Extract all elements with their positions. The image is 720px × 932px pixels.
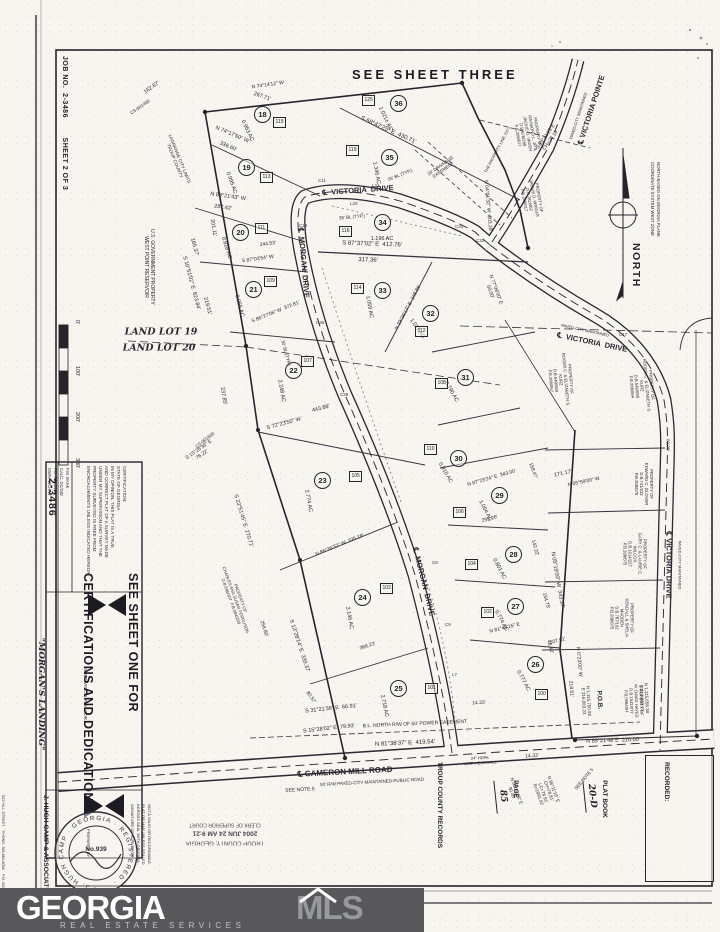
map-annotation: 158.47' [526, 462, 537, 479]
house-number: 100 [535, 689, 548, 700]
lot-acreage: 0.995 AC [224, 171, 238, 194]
house-number: 115 [273, 117, 286, 128]
lot-number-circle: 20 [232, 224, 249, 241]
map-annotation: N 87°23'24" E 343.00' [467, 469, 517, 488]
map-annotation: P.O.B. [595, 690, 604, 709]
map-annotation: 165.37' [189, 238, 200, 257]
house-number: 112 [415, 326, 428, 337]
house-number: 105 [349, 471, 362, 482]
map-annotation: LAGRANGE CITY LIMITS TROUP COUNTY [162, 134, 191, 186]
curve-label: C17 [619, 332, 627, 337]
map-annotation: 35' BL (TYP.) [339, 213, 365, 221]
map-annotation: S 15°28'36" E 76.22' [185, 439, 217, 466]
map-annotation: 267.71' [252, 91, 271, 103]
map-annotation: S 15°28'02" E 79.93' [303, 723, 355, 735]
map-annotation: 80.57' [304, 691, 317, 705]
map-annotation: 60.00' [665, 439, 670, 451]
recorded-box-content: RECORDED: PLAT BOOK 20-D PAGE 85 TROUP C… [397, 762, 709, 874]
map-annotation: N 74°14'12" W [251, 81, 284, 91]
map-annotation: 171.17' [554, 469, 573, 479]
map-annotation: PROPERTY OF EDWARD C. GLOVER D.B.741/232… [633, 463, 653, 505]
map-annotation: N 05°19'00" W 343.37' [549, 552, 565, 609]
curve-label: L7 [452, 672, 457, 677]
house-number: 103 [380, 583, 393, 594]
job-number-strip: JOB NO. 2-3486 SHEET 2 OF 3 [61, 56, 68, 190]
georgia-mls-banner: GEORGIA MLS REAL ESTATE SERVICES [0, 888, 424, 932]
map-annotation: S 87°37'02" E 412.76' [342, 240, 402, 249]
map-annotation: ℄ VICTORIA DRIVE [322, 184, 394, 198]
house-number: 114 [351, 283, 364, 294]
curve-label: C9 [445, 622, 451, 627]
stamp-clerk-line: CLERK OF SUPERIOR COURT [165, 820, 285, 828]
lot-number-circle: 31 [457, 369, 474, 386]
map-annotation: S 10°51'02" E 823.84' [181, 256, 201, 311]
house-number: 104 [465, 559, 478, 570]
map-annotation: CS-801400 [129, 98, 151, 115]
map-annotation: THE PROPERTY LINE 707'± [484, 126, 512, 174]
map-annotation: 368.23' [359, 642, 376, 653]
subdivision-name: "MORGAN'S LANDING" [36, 600, 46, 788]
plat-book-value: 20-D [582, 779, 599, 812]
surveyor-firm-name: J. HUGH CAMP & ASSOCIATES [42, 795, 49, 891]
map-annotation: PROPERTY OF GARY C. & LAURIE C. WILCOX D… [622, 533, 647, 576]
map-annotation: 30' BL (TYP.) [280, 340, 292, 367]
lot-acreage: 2.718 AC [378, 694, 389, 717]
title-block: SUBDIVISION PLAT FOR "MORGAN'S LANDING" … [0, 600, 124, 788]
job-number-block: 2-3486 [46, 478, 58, 517]
stamp-county-line: TROUP COUNTY, GEORGIA [165, 837, 285, 846]
lot-number-circle: 24 [354, 589, 371, 606]
map-annotation: 24" HDPE W/SR HEADWALL [463, 755, 497, 766]
map-annotation: ℄ VICTORIA DRIVE [664, 531, 673, 598]
map-annotation: N 88°21'43" W [210, 191, 246, 202]
lot-acreage: 0.777 AC [515, 669, 531, 692]
map-annotation: S 72°23'50" W [266, 416, 302, 431]
curve-label: C36 [316, 320, 324, 325]
map-annotation: N 0°23'00" W [574, 647, 582, 677]
scale-label-0: 0' [74, 320, 80, 324]
prepared-by-label: PREPARED BY [86, 795, 91, 891]
map-annotation: PROPERTY OF ROGER C. & ELIZABETH S. KURZ… [545, 352, 574, 408]
lot-acreage: 1.059 AC [364, 295, 374, 318]
map-annotation: 287.42' [214, 204, 233, 213]
stamp-date-line: 2004 JUN 24 AM 9:21 [165, 828, 285, 838]
surveyor-address-line1: 922 HILL STREET PHONE: 706-884-6056 P.O.… [1, 795, 5, 891]
map-annotation: PROPERTY OF ROGER C. & ELIZABETH S. KURZ… [626, 358, 655, 414]
lot-acreage: 0.801 AC [491, 557, 507, 580]
map-annotation: 25' BL (TYP.) [387, 168, 413, 183]
house-number: 109 [264, 276, 277, 287]
map-annotation: S 23°51'45" E 270.71' [232, 494, 254, 548]
see-sheet-three-title: SEE SHEET THREE [352, 67, 518, 82]
lot-number-circle: 34 [374, 214, 391, 231]
map-annotation: PROPERTY OF JACKIE D. WRIGHT D.B.782/462… [518, 178, 544, 219]
lot-acreage: 0.910 AC [437, 462, 454, 485]
house-number: 113 [260, 172, 273, 183]
map-annotation: 256.80' [258, 620, 269, 637]
lot-number-circle: 29 [491, 487, 508, 504]
map-annotation: 219.51' [202, 297, 213, 316]
map-annotation: N 86°36'32" W 335.18' [315, 534, 365, 559]
house-number: 101 [425, 683, 438, 694]
map-annotation: B.L. NORTH R/W OF 50' POWER EASEMENT [363, 720, 468, 730]
lot-acreage: 2.774 AC [303, 489, 313, 512]
curve-label: L20 [350, 201, 358, 206]
curve-label: C38 [340, 392, 348, 397]
lot-number-circle: 26 [527, 656, 544, 673]
map-annotation: N 89°21'48"E 220.00' [586, 737, 640, 745]
scale-label-300: 300' [74, 458, 80, 468]
house-number: 119 [346, 145, 359, 156]
lot-number-circle: 21 [245, 281, 262, 298]
map-annotation: U.S. GOVERNMENT PROPERTY WEST POINT RESE… [142, 229, 154, 305]
house-number: 106 [453, 507, 466, 518]
map-annotation: N 05°59'00" W [567, 477, 600, 490]
curve-label: C11 [318, 178, 326, 183]
lot-number-circle: 36 [390, 95, 407, 112]
house-number: 125 [362, 95, 375, 106]
map-annotation: PROPERTY OF KENDALL & SHELIA MADDEN D.B.… [609, 599, 634, 638]
map-annotation: 14.33' [525, 754, 539, 761]
map-annotation: 295.26' [481, 515, 498, 525]
map-annotation: N 81°43'15" E [489, 622, 521, 635]
lot-acreage: 2.146 AC [344, 606, 354, 629]
map-annotation: N 04°01'32" W 203.28' [482, 180, 492, 232]
map-annotation: ℄ MORGAN DRIVE [410, 547, 436, 617]
map-annotation: PROPERTY OF CHARLES AND SUSAN FERGUSON D… [216, 565, 254, 636]
lot-number-circle: 30 [450, 450, 467, 467]
map-annotation: LAND LOT 20 [123, 342, 196, 353]
house-number: 111 [255, 223, 268, 234]
curve-label: C33 [476, 238, 484, 243]
see-sheet-one-line1: SEE SHEET ONE FOR [125, 573, 140, 811]
map-annotation: 162.67' [143, 80, 161, 96]
plat-book-label: PLAT BOOK [601, 780, 608, 818]
county-clerk-stamp: TROUP COUNTY, GEORGIA 2004 JUN 24 AM 9:2… [165, 820, 285, 846]
plat-labels-layer: SEE SHEET THREE JOB NO. 2-3486 SHEET 2 O… [0, 0, 720, 932]
mls-mountain-icon [0, 888, 424, 932]
seal-validity-note: NOT A VALID OR RECORDABLE PLAT OR MAP UN… [130, 804, 152, 864]
map-annotation: 336.60' [219, 141, 238, 154]
map-annotation: S 87°03'54" W [242, 255, 275, 265]
map-annotation: 20' DRAINAGE EASEMENT [426, 155, 457, 181]
lot-number-circle: 27 [507, 598, 524, 615]
map-annotation: 154.75' [540, 592, 550, 609]
map-annotation: N 1,115,700.92 E 216,083.23 [580, 686, 592, 717]
house-number: 116 [339, 226, 352, 237]
lot-acreage: 0.955 AC [233, 294, 245, 318]
map-annotation: PROPERTY OF M. DAVID HAYES D.B.1542/077 … [623, 684, 644, 718]
map-annotation: S 31°21'36" E 66.91' [305, 703, 357, 715]
lot-number-circle: 35 [381, 149, 398, 166]
map-annotation: ℄ MORGAN DRIVE [296, 228, 311, 299]
title-block-subplat: SUBDIVISION PLAT FOR [83, 600, 88, 788]
map-annotation: 218.51' [566, 681, 573, 698]
map-annotation: PAVED-CITY MAINTAINED [677, 541, 682, 590]
lot-acreage: 2.248 AC [276, 379, 286, 402]
house-number: 102 [481, 607, 494, 618]
map-annotation: 142.22' [529, 539, 539, 556]
lot-number-circle: 25 [390, 680, 407, 697]
lot-number-circle: 33 [374, 282, 391, 299]
scale-label-200: 200' [74, 412, 80, 422]
north-basis-note: NORTH BASED ON GEORGIA PLANE COORDINATE … [649, 162, 661, 237]
map-annotation: 237.85' [218, 387, 227, 406]
house-number: 107 [301, 356, 314, 367]
map-annotation: ℄ CAMERON MILL ROAD [297, 765, 393, 779]
recorded-title: RECORDED: [660, 762, 673, 874]
lot-acreage: 1.346 AC [371, 161, 381, 184]
house-number: 108 [435, 378, 448, 389]
house-number: 110 [424, 444, 437, 455]
map-annotation: LAND LOT 19 [125, 326, 198, 337]
map-annotation: 14.33' [472, 701, 486, 708]
map-annotation: SEE NOTE 5 [285, 787, 315, 794]
curve-label: C34 [455, 224, 463, 229]
map-annotation: S 13°28'14" E 339.37' [287, 619, 310, 673]
north-label: NORTH [630, 243, 642, 288]
map-annotation: 201.11' [208, 219, 217, 237]
map-annotation: 317.36' [358, 257, 378, 265]
prepared-by-block: PREPARED BY J. HUGH CAMP & ASSOCIATES 92… [0, 795, 127, 891]
map-annotation: 443.88' [312, 404, 331, 415]
map-annotation: S 86°27'06" W 372.81' [251, 301, 301, 326]
scanned-plat-page: · J. HUGH CAMP · GEORGIA · REGISTERED · … [0, 0, 720, 932]
recorded-box: RECORDED: PLAT BOOK 20-D PAGE 85 TROUP C… [645, 755, 714, 882]
scale-label-100: 100' [74, 366, 80, 376]
map-annotation: N 77°09'00" E 50.00' [481, 274, 503, 307]
map-annotation: N 81°38'37" E 419.54' [375, 739, 435, 749]
lot-number-circle: 19 [238, 159, 255, 176]
lot-number-circle: 28 [505, 546, 522, 563]
recorded-records: TROUP COUNTY RECORDS [433, 762, 446, 874]
lot-acreage: 0.818 AC [219, 236, 232, 260]
curve-label: C8 [432, 560, 438, 565]
map-annotation: 244.53' [260, 241, 277, 249]
lot-number-circle: 32 [422, 305, 439, 322]
certification-text: CERTIFICATION: STATE OF GEORGIA IN MY OP… [85, 466, 127, 576]
lot-number-circle: 18 [254, 106, 271, 123]
lot-number-circle: 23 [314, 472, 331, 489]
